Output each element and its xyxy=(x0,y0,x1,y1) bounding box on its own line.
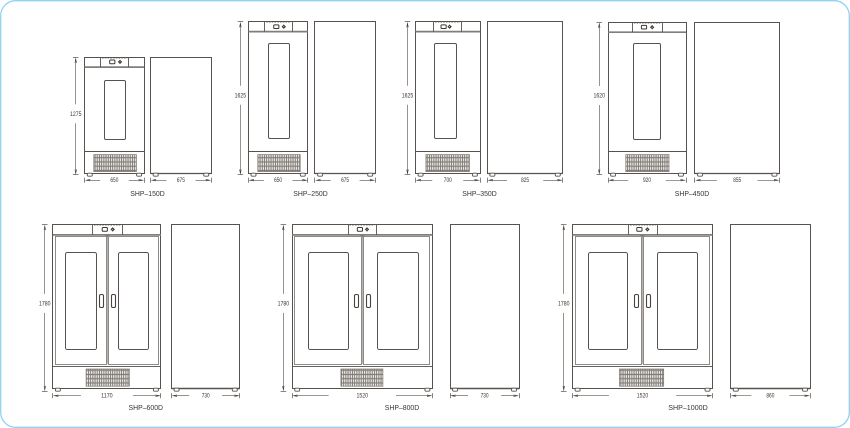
svg-text:1275: 1275 xyxy=(70,111,82,118)
svg-text:SHP–450D: SHP–450D xyxy=(675,189,710,198)
svg-text:700: 700 xyxy=(444,177,452,184)
svg-text:SHP–150D: SHP–150D xyxy=(130,189,165,198)
svg-text:675: 675 xyxy=(177,177,185,184)
svg-text:1625: 1625 xyxy=(235,93,247,100)
svg-text:650: 650 xyxy=(110,177,118,184)
svg-text:920: 920 xyxy=(643,177,651,184)
svg-text:650: 650 xyxy=(274,177,282,184)
svg-text:1170: 1170 xyxy=(101,393,113,400)
svg-text:730: 730 xyxy=(481,393,489,400)
svg-text:860: 860 xyxy=(766,393,774,400)
svg-text:SHP–350D: SHP–350D xyxy=(462,189,497,198)
svg-text:SHP–250D: SHP–250D xyxy=(293,189,328,198)
svg-text:1780: 1780 xyxy=(39,301,51,308)
svg-text:SHP–600D: SHP–600D xyxy=(129,403,164,412)
svg-text:730: 730 xyxy=(202,393,210,400)
svg-text:1520: 1520 xyxy=(637,393,649,400)
svg-text:825: 825 xyxy=(521,177,529,184)
svg-text:SHP–800D: SHP–800D xyxy=(385,403,420,412)
svg-text:1780: 1780 xyxy=(558,301,570,308)
svg-text:675: 675 xyxy=(341,177,349,184)
svg-text:1520: 1520 xyxy=(357,393,369,400)
svg-text:1625: 1625 xyxy=(402,93,414,100)
svg-text:SHP–1000D: SHP–1000D xyxy=(668,403,708,412)
svg-text:855: 855 xyxy=(733,177,741,184)
svg-text:1780: 1780 xyxy=(278,301,290,308)
svg-text:1620: 1620 xyxy=(594,93,606,100)
